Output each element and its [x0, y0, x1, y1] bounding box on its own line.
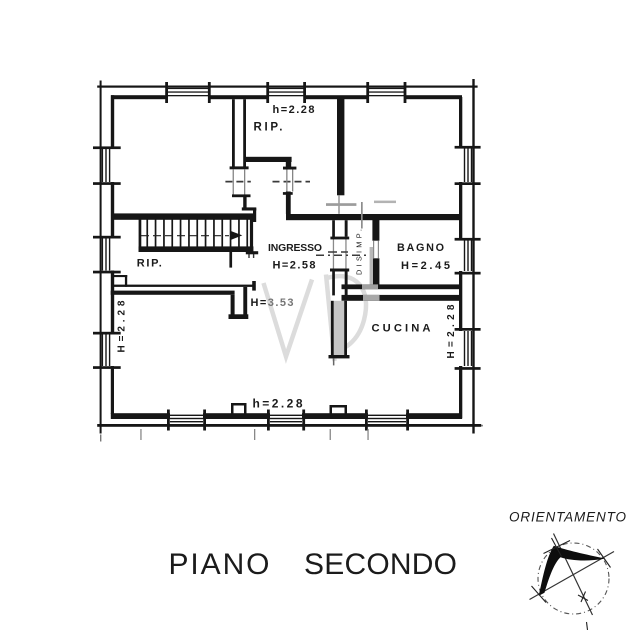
svg-text:H=2.28: H=2.28	[117, 300, 128, 352]
svg-text:H=2.58: H=2.58	[273, 260, 316, 272]
svg-text:h=2.28: h=2.28	[253, 397, 303, 411]
svg-text:INGRESSO: INGRESSO	[268, 243, 322, 254]
svg-text:RIP.: RIP.	[254, 122, 283, 134]
svg-text:h=2.28: h=2.28	[273, 104, 315, 116]
svg-text:BAGNO: BAGNO	[397, 242, 444, 254]
svg-text:H=2.28: H=2.28	[446, 304, 457, 358]
svg-text:PIANO: PIANO	[169, 548, 270, 581]
svg-text:CUCINA: CUCINA	[372, 323, 431, 335]
svg-text:H=2.45: H=2.45	[401, 260, 450, 272]
svg-text:SECONDO: SECONDO	[304, 548, 457, 581]
svg-text:ORIENTAMENTO: ORIENTAMENTO	[509, 510, 626, 525]
svg-text:H=3.53: H=3.53	[251, 297, 294, 309]
svg-text:RIP.: RIP.	[137, 258, 162, 270]
svg-text:DISIMP.: DISIMP.	[355, 229, 364, 275]
